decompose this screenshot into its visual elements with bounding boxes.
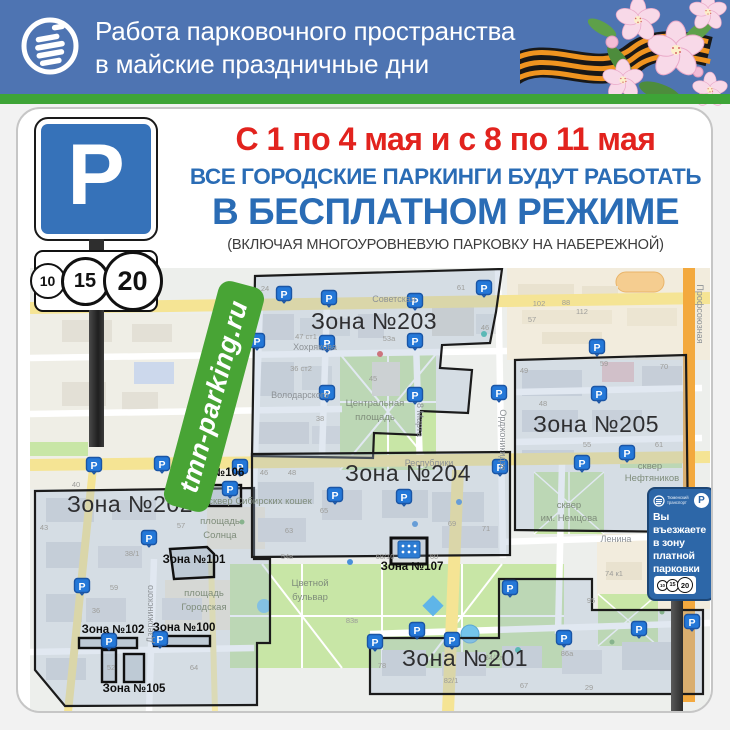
tariff-20-badge: 20 (677, 577, 693, 593)
house-number-label: 53а (383, 334, 396, 343)
dates-heading: С 1 по 4 мая и с 8 по 11 мая (178, 121, 713, 158)
house-number-label: 49 (520, 366, 528, 375)
place-label: сквер Сибирских кошек (208, 496, 312, 507)
house-number-label: 63 (285, 526, 293, 535)
house-number-label: 67 (520, 681, 528, 690)
zone-label-small: Зона №102 (82, 624, 145, 636)
main-card: С 1 по 4 мая и с 8 по 11 мая ВСЕ ГОРОДСК… (16, 107, 713, 713)
city-map: P (30, 268, 710, 712)
house-number-label: 70 (660, 362, 668, 371)
entrance-text-line: Вы (653, 511, 709, 524)
house-number-label: 55 (583, 440, 591, 449)
entrance-tariff-plate: 10 15 20 (654, 576, 696, 594)
transport-logo-icon (19, 15, 81, 77)
place-label: Городская (181, 602, 226, 613)
house-number-label: 102 (533, 299, 546, 308)
place-label: Солнца (203, 530, 237, 541)
multilevel-parking-icon (398, 541, 420, 558)
street-label: Орджоникидзе (498, 409, 508, 470)
house-number-label: 57 (177, 521, 185, 530)
street-label: Дзержинского (145, 585, 155, 643)
subtitle-line1: ВСЕ ГОРОДСКИЕ ПАРКИНГИ БУДУТ РАБОТАТЬ (178, 164, 713, 190)
house-number-label: 43 (40, 523, 48, 532)
house-number-label: 36 (92, 606, 100, 615)
header-title: Работа парковочного пространства в майск… (95, 15, 515, 81)
place-label: площадь (355, 412, 395, 423)
tariff-20-badge: 20 (103, 251, 163, 311)
street-label: Ленина (601, 534, 632, 544)
place-label: им. Немцова (541, 513, 598, 524)
street-label: 8 Марта (415, 403, 425, 437)
operator-name: Тюменский транспорт (667, 496, 689, 506)
place-label: площадь (200, 516, 240, 527)
zone-label-small: Зона №105 (103, 683, 166, 695)
house-number-label: 61 (457, 283, 465, 292)
green-stripe (0, 94, 730, 104)
place-label: сквер (638, 461, 662, 472)
parking-sign: P 10 15 20 (34, 117, 162, 241)
sign-pole (89, 310, 104, 447)
house-number-label: 52 (107, 663, 115, 672)
place-label: Центральная (346, 398, 405, 409)
entrance-sign-text: Вы въезжаете в зону платной парковки (653, 511, 709, 576)
header-title-line2: в майские праздничные дни (95, 48, 515, 81)
entrance-text-line: парковки (653, 563, 709, 576)
house-number-label: 95 (587, 596, 595, 605)
header: Работа парковочного пространства в майск… (0, 0, 730, 94)
subtitle-line2: В БЕСПЛАТНОМ РЕЖИМЕ (178, 191, 713, 233)
house-number-label: 57 (528, 315, 536, 324)
place-label: Цветной (291, 578, 328, 589)
entrance-sign: Тюменский транспорт P Вы въезжаете в зон… (647, 487, 713, 601)
parking-sign-p: P (41, 124, 151, 234)
house-number-label: 61 (655, 440, 663, 449)
zone-label: Зона №204 (345, 460, 471, 486)
house-number-label: 59 (600, 359, 608, 368)
street-label: Володарского (271, 390, 329, 400)
house-number-label: 48 (539, 399, 547, 408)
house-number-label: 38 (316, 414, 324, 423)
place-label: сквер (557, 500, 581, 511)
zone-label-small: Зона №100 (153, 622, 216, 634)
house-number-label: 86а (561, 649, 574, 658)
house-number-label: 48 (288, 468, 296, 477)
house-number-label: 88 (562, 298, 570, 307)
zone-label-small: Зона №107 (381, 561, 444, 573)
house-number-label: 71 (482, 524, 490, 533)
house-number-label: 69 (448, 519, 456, 528)
house-number-label: 40 (72, 480, 80, 489)
house-number-label: 64 (190, 663, 198, 672)
zone-label: Зона №203 (311, 308, 437, 334)
place-label: Нефтяников (625, 473, 679, 484)
entrance-sign-p-icon: P (694, 493, 709, 508)
street-label: Профсоюзная (695, 284, 705, 343)
header-title-line1: Работа парковочного пространства (95, 15, 515, 48)
entrance-text-line: въезжаете (653, 524, 709, 537)
house-number-label: 29 (585, 683, 593, 692)
house-number-label: 82/1 (444, 676, 459, 685)
street-label: Советская (372, 294, 416, 304)
house-number-label: 65 (320, 506, 328, 515)
house-number-label: 78 (378, 661, 386, 670)
parking-sign-board: P (34, 117, 158, 241)
blossom-flowers-icon (585, 0, 729, 108)
place-label: бульвар (292, 592, 328, 603)
house-number-label: 38/1 (125, 549, 140, 558)
operator-name-line2: транспорт (667, 501, 689, 506)
house-number-label: 60 (430, 552, 438, 561)
house-number-label: 36 ст2 (290, 364, 312, 373)
title-block: С 1 по 4 мая и с 8 по 11 мая ВСЕ ГОРОДСК… (178, 121, 713, 253)
entrance-sign-header: Тюменский транспорт P (653, 493, 709, 508)
tariff-plate: 10 15 20 (34, 250, 158, 312)
house-number-label: 46 (481, 323, 489, 332)
house-number-label: 54в (281, 552, 293, 561)
zone-label-small: Зона №101 (163, 554, 226, 566)
house-number-label: 45 (369, 374, 377, 383)
zone-label: Зона №205 (533, 411, 659, 437)
zone-label: Зона №201 (402, 645, 528, 671)
house-number-label: 112 (576, 307, 588, 316)
house-number-label: 59 (110, 583, 118, 592)
place-label: площадь (184, 588, 224, 599)
poster: Работа парковочного пространства в майск… (0, 0, 730, 730)
entrance-sign-pole (671, 598, 683, 713)
house-number-label: 68/10 (376, 552, 395, 561)
entrance-text-line: платной (653, 550, 709, 563)
street-label: Хохрякова (293, 342, 337, 352)
house-number-label: 74 к1 (605, 569, 623, 578)
operator-logo-icon (653, 495, 665, 507)
house-number-label: 46 (260, 468, 268, 477)
st-george-ribbon-icon (520, 32, 711, 89)
house-number-label: 83в (346, 616, 358, 625)
entrance-text-line: в зону (653, 537, 709, 550)
subtitle-note: (ВКЛЮЧАЯ МНОГОУРОВНЕВУЮ ПАРКОВКУ НА НАБЕ… (178, 237, 713, 253)
